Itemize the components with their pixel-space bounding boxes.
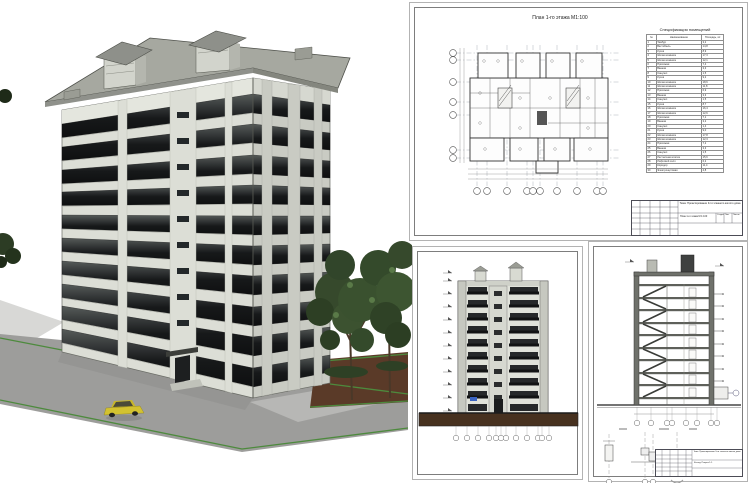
- ground-band: [419, 413, 578, 426]
- vent-tower: [189, 31, 246, 73]
- sheet-cell: Лист: [725, 214, 729, 216]
- sheets-cell: Листов: [733, 214, 740, 216]
- porch-box: [714, 387, 728, 399]
- axis-stems: [637, 407, 717, 420]
- title-block: Тема: Проектирование 9-ти этажного жилог…: [631, 200, 743, 236]
- vent-caps: [473, 262, 524, 281]
- title-block: Тема: Проектирование 9-ти этажного жилог…: [655, 449, 743, 477]
- section-drawing: [589, 242, 749, 483]
- workspace: План 1-го этажа М1:100: [0, 0, 750, 485]
- title-block-theme: Тема: Проектирование 9-ти этажного жилог…: [679, 202, 741, 205]
- elevation-marks: [443, 270, 452, 411]
- sheet-elevation: [412, 246, 583, 480]
- stage-cell: Стадия: [717, 214, 724, 216]
- balcony-hooks: [714, 293, 724, 382]
- vent-tower: [96, 42, 152, 89]
- dim-text-marks: [619, 428, 697, 430]
- axis-bubbles: [634, 420, 720, 426]
- building-3d: [45, 31, 350, 398]
- entrance-door: [494, 399, 503, 413]
- title-block-theme: Тема: Проектирование 9-ти этажного жилог…: [693, 451, 741, 453]
- spec-row: 30Электрощитовая4,8: [647, 168, 724, 172]
- spec-title: Спецификация помещений: [646, 27, 724, 32]
- blue-sign: [470, 397, 477, 401]
- door-openings: [689, 288, 696, 397]
- axis-bubbles: [453, 435, 552, 441]
- sheet-section: Тема: Проектирование 9-ти этажного жилог…: [588, 241, 748, 482]
- stair-flights: [643, 286, 666, 397]
- sheet-floor-plan: План 1-го этажа М1:100: [409, 2, 748, 241]
- elevation-drawing: [413, 247, 584, 481]
- axis-stems: [456, 426, 549, 435]
- spec-table: Спецификация помещений № Наименование Пл…: [646, 27, 724, 173]
- title-block-doc: Фасад. Разрез 1-1: [694, 462, 712, 464]
- 3d-building-view: [0, 0, 412, 485]
- title-block-doc: План 1-го этажа М 1:100: [680, 215, 715, 218]
